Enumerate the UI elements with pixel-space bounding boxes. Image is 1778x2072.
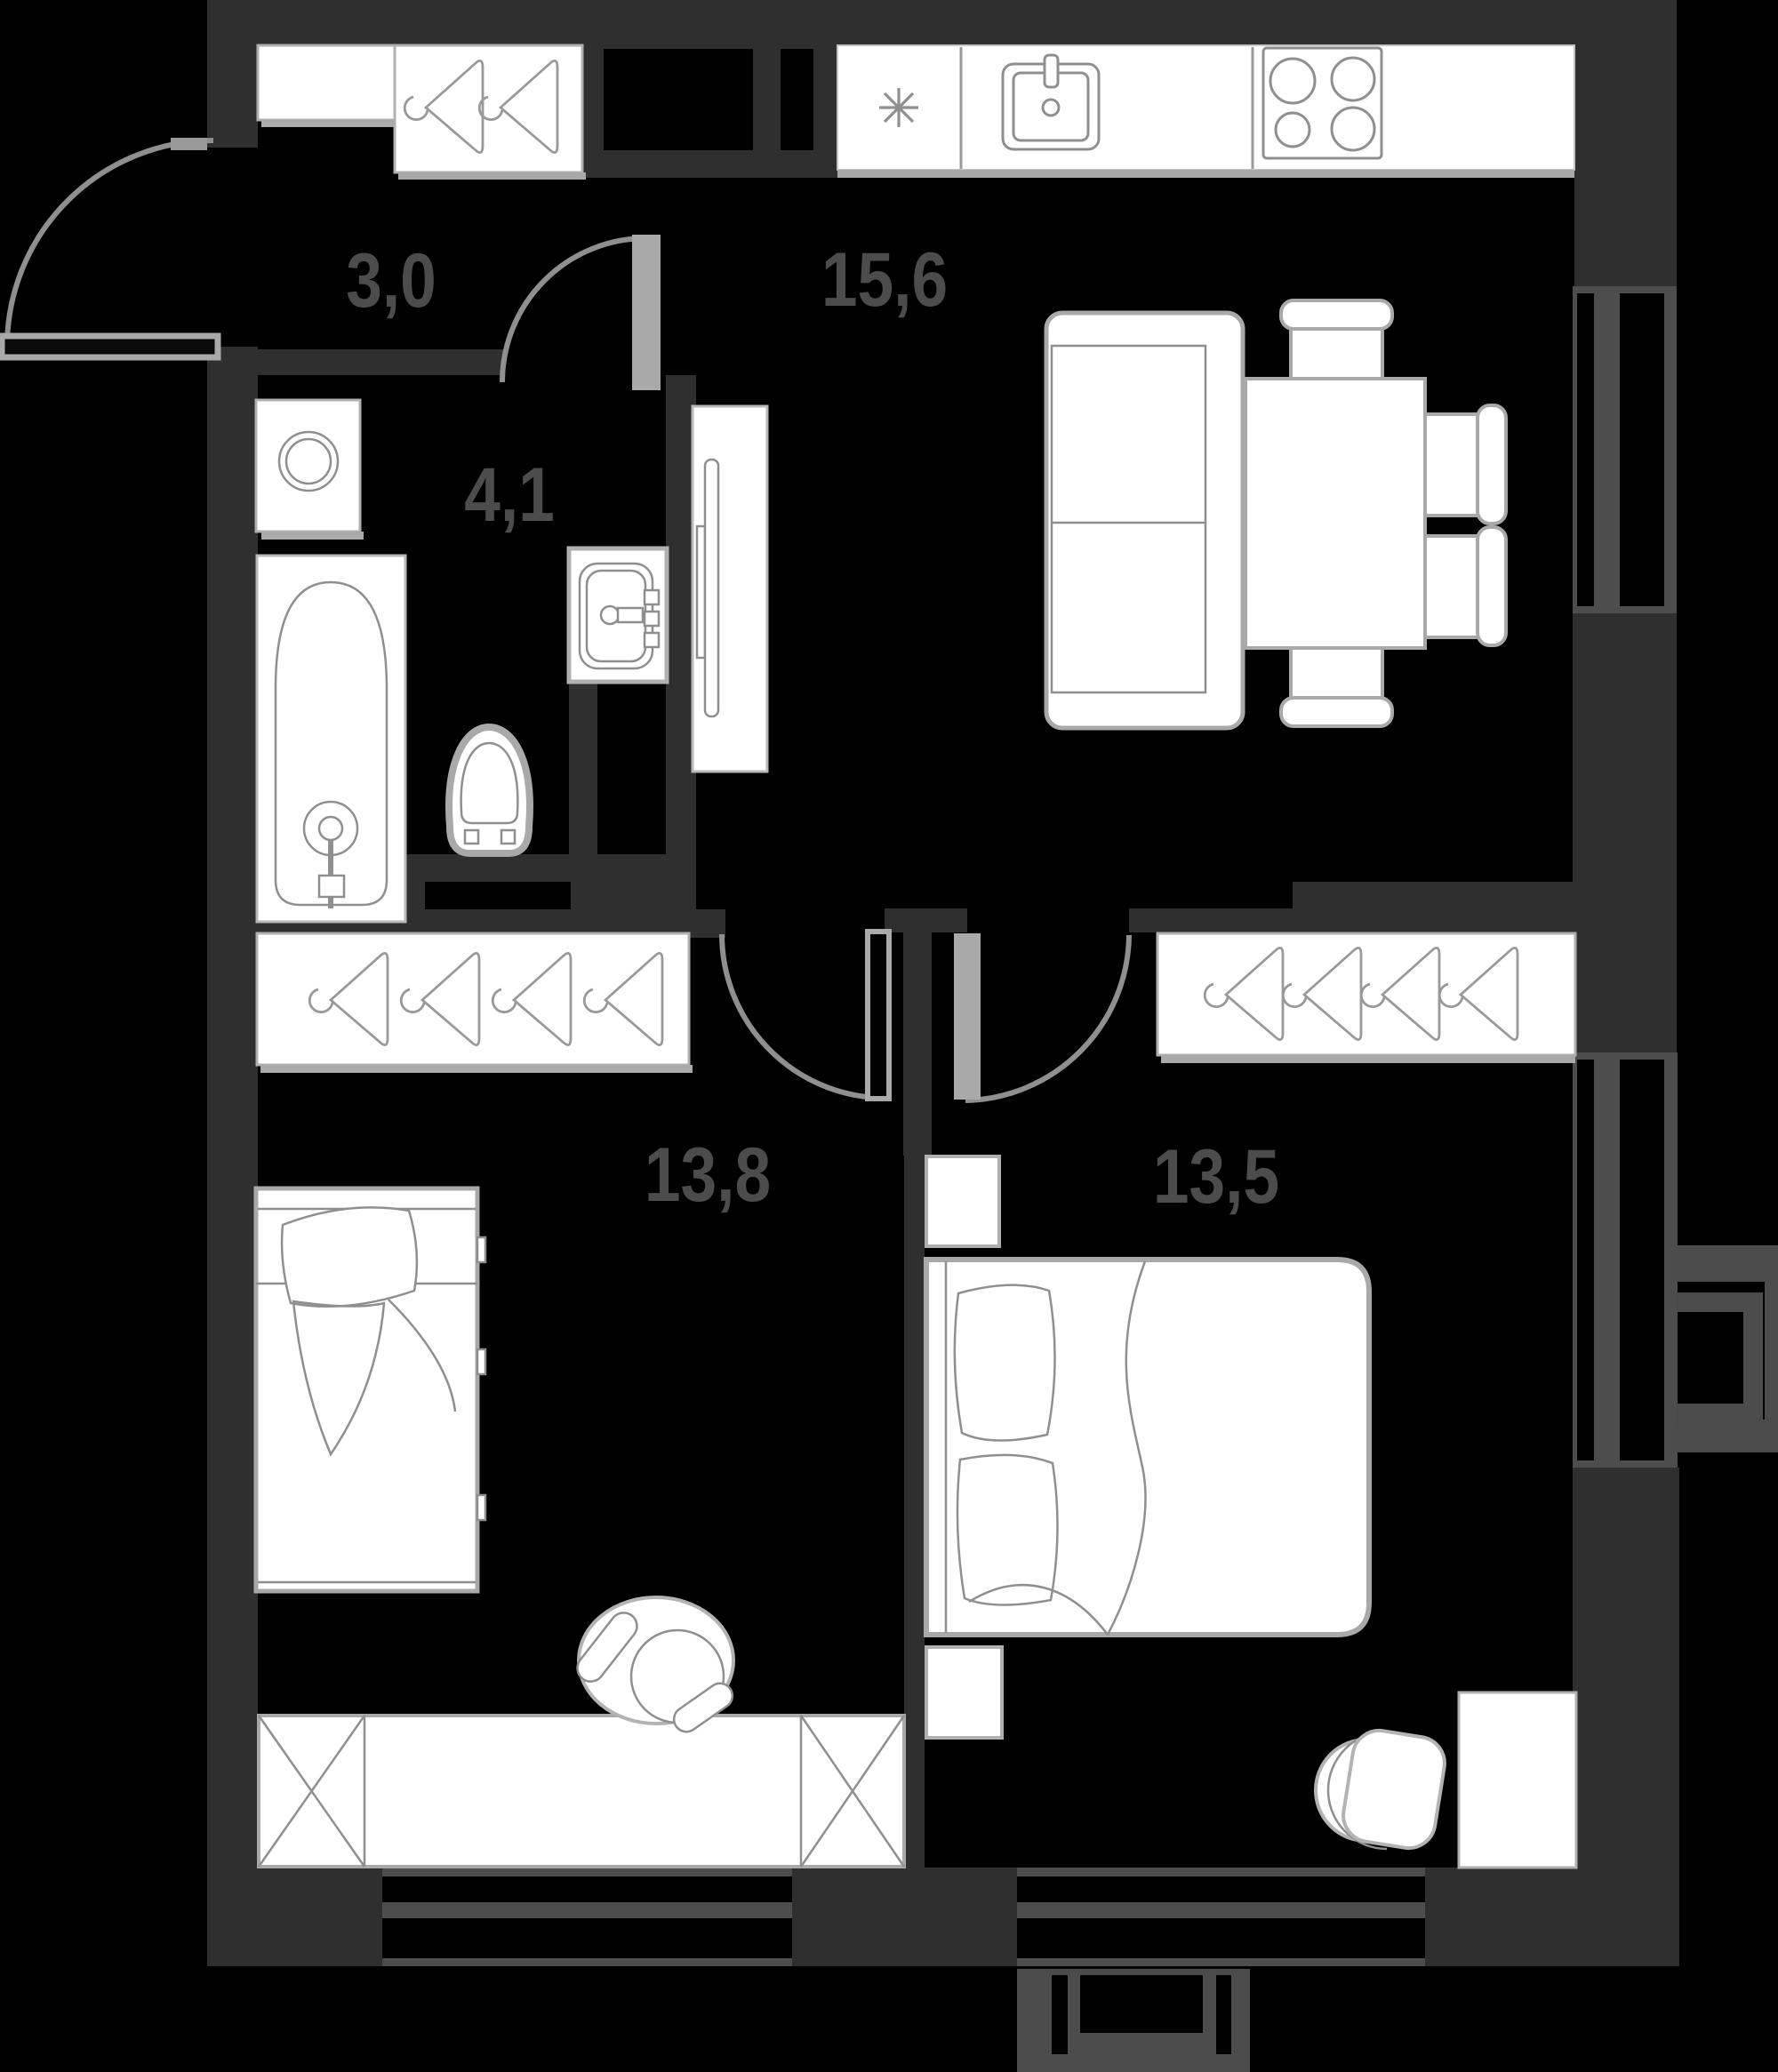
svg-text:4,1: 4,1	[464, 452, 555, 537]
svg-text:3,0: 3,0	[346, 237, 436, 323]
svg-text:13,5: 13,5	[1153, 1133, 1279, 1219]
svg-text:15,6: 15,6	[821, 236, 948, 322]
svg-text:13,8: 13,8	[645, 1132, 771, 1217]
